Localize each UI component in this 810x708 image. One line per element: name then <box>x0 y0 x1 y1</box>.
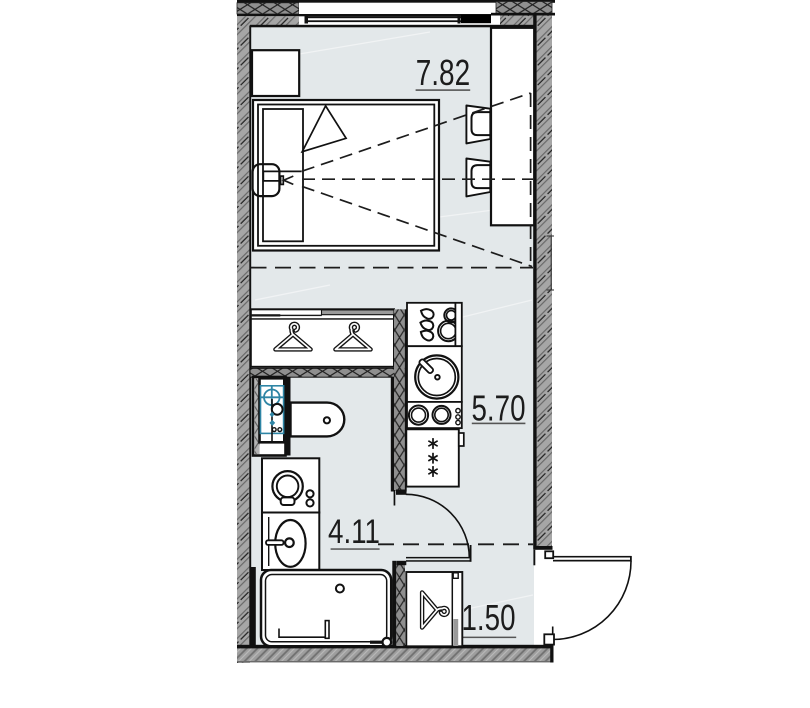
svg-text:5.70: 5.70 <box>472 388 526 429</box>
svg-text:4.11: 4.11 <box>328 513 380 551</box>
svg-text:7.82: 7.82 <box>416 52 471 93</box>
svg-text:1.50: 1.50 <box>462 597 516 638</box>
